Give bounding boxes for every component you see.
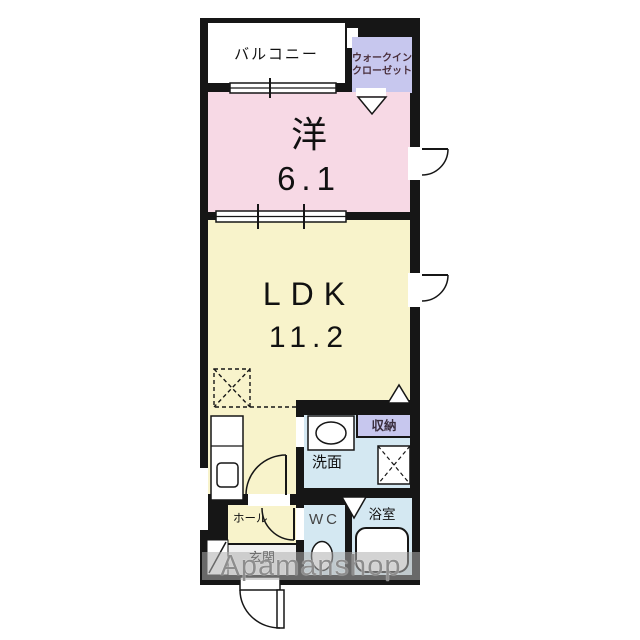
room-walk-in-closet: ウォークイン クローゼット — [352, 37, 412, 93]
room-kitchen-area — [208, 410, 296, 500]
bathroom-label: 浴室 — [369, 503, 396, 523]
room-ldk: LDK 11.2 — [208, 220, 410, 410]
room-storage: 収納 — [356, 410, 412, 438]
room-hall: ホール — [228, 505, 296, 544]
hall-label: ホール — [233, 510, 268, 526]
balcony-label: バルコニー — [234, 43, 319, 64]
watermark-text: Apamanshop — [221, 550, 402, 583]
western-room-size: 6.1 — [277, 160, 341, 198]
storage-label: 収納 — [371, 415, 396, 434]
walk-in-closet-label-line1: ウォークイン — [352, 52, 412, 65]
walk-in-closet-label-line2: クローゼット — [352, 65, 412, 78]
ldk-size: 11.2 — [269, 321, 349, 355]
floorplan-canvas: バルコニー ウォークイン クローゼット 洋 6.1 LDK 11.2 洗面 収納… — [0, 0, 640, 640]
watermark-band: Apamanshop — [202, 552, 420, 580]
room-western: 洋 6.1 — [208, 92, 410, 212]
washroom-label: 洗面 — [312, 451, 342, 472]
wc-label: WC — [309, 511, 340, 528]
room-balcony: バルコニー — [206, 21, 347, 85]
ldk-label: LDK — [263, 276, 355, 313]
western-room-label: 洋 — [291, 106, 327, 158]
